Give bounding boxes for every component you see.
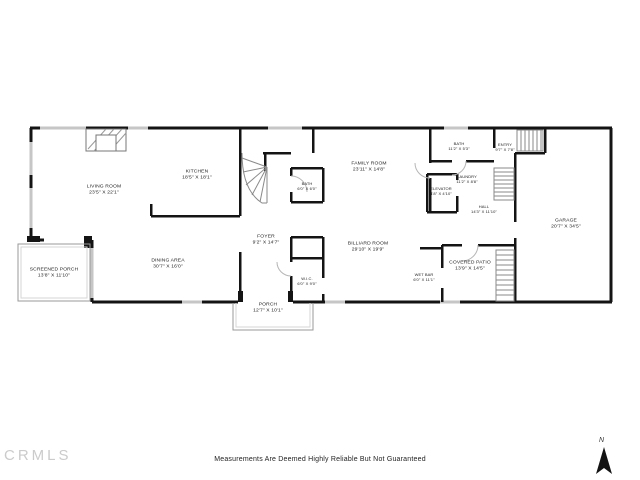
room-label-screened-porch: SCREENED PORCH13'8" X 11'10": [30, 266, 79, 278]
room-label-covered-patio: COVERED PATIO13'9" X 14'5": [449, 259, 491, 271]
room-label-foyer: FOYER9'2" X 14'7": [253, 233, 280, 245]
measurement-disclaimer: Measurements Are Deemed Highly Reliable …: [0, 456, 640, 463]
room-label-hall: HALL14'3" X 11'10": [471, 204, 497, 214]
room-label-dining-area: DINING AREA30'7" X 16'0": [151, 257, 184, 269]
fireplace: [86, 129, 126, 151]
entry-stairs: [517, 130, 543, 151]
room-label-wic: W.I.C.6'0" X 9'0": [297, 276, 316, 286]
room-label-family-room: FAMILY ROOM23'11" X 14'8": [351, 160, 386, 172]
floor-plan-page: LIVING ROOM23'5" X 22'1" KITCHEN18'5" X …: [0, 0, 640, 480]
main-staircase: [242, 153, 267, 203]
floor-plan-drawing: [0, 0, 640, 480]
room-label-laundry: LAUNDRY11'2" X 8'8": [456, 174, 477, 184]
hall-stairs: [494, 168, 514, 200]
room-label-porch: PORCH12'7" X 10'1": [253, 301, 283, 313]
room-label-kitchen: KITCHEN18'5" X 18'1": [182, 168, 212, 180]
north-arrow-label: N: [599, 437, 604, 444]
room-label-entry: ENTRY9'7" X 7'8": [495, 142, 514, 152]
room-label-wet-bar: WET BAR6'0" X 11'1": [413, 272, 434, 282]
room-label-billiard-room: BILLIARD ROOM29'10" X 19'9": [348, 240, 388, 252]
exterior-windows: [31, 128, 468, 302]
room-label-bath-main: BATH6'0" X 6'0": [297, 181, 316, 191]
patio-stairs: [496, 250, 514, 301]
room-label-living-room: LIVING ROOM23'5" X 22'1": [87, 183, 121, 195]
room-label-bath-upper: BATH11'2" X 5'3": [448, 141, 469, 151]
room-label-garage: GARAGE20'7" X 34'5": [551, 217, 581, 229]
interior-walls: [151, 128, 545, 302]
room-label-elevator: ELEVATOR4'8" X 4'10": [430, 186, 452, 196]
